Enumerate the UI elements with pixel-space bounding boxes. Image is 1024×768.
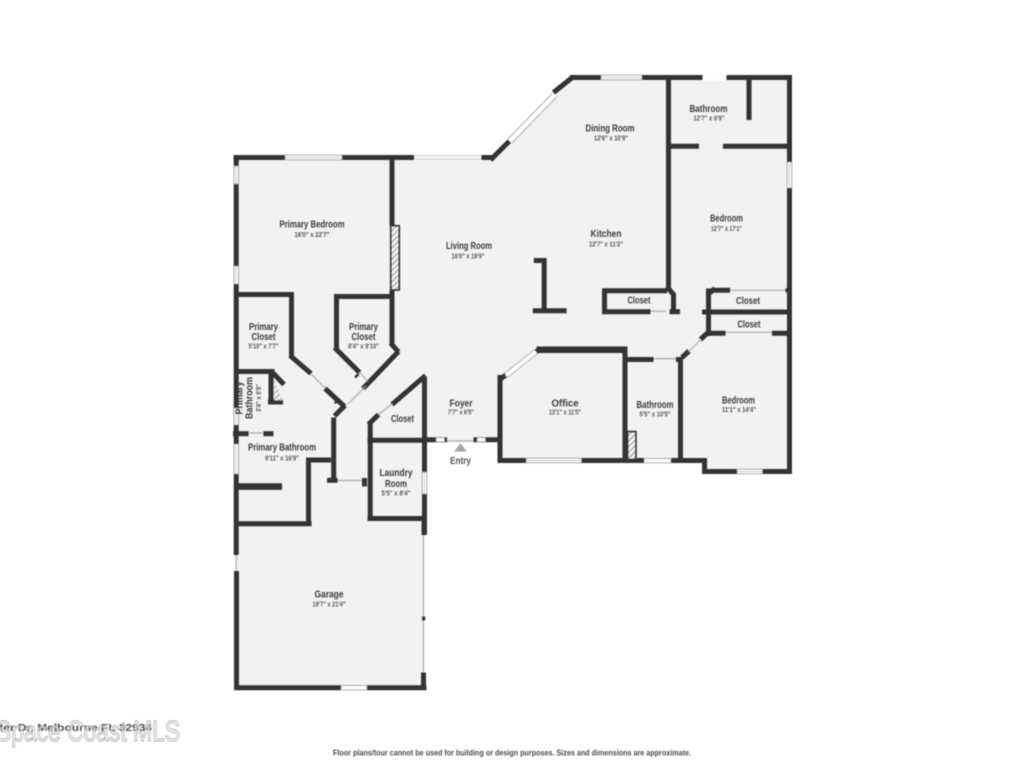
svg-text:Closet: Closet — [738, 319, 761, 331]
svg-text:12'7" x 17'1": 12'7" x 17'1" — [711, 224, 742, 233]
svg-text:12'6" x 10'9": 12'6" x 10'9" — [594, 134, 628, 143]
svg-text:Entry: Entry — [450, 455, 471, 467]
svg-text:Living Room: Living Room — [446, 240, 492, 252]
svg-text:13'1" x 11'5": 13'1" x 11'5" — [549, 408, 581, 417]
svg-text:Closet: Closet — [391, 413, 414, 425]
svg-text:Primary Bathroom: Primary Bathroom — [248, 442, 316, 454]
svg-text:8'4" x 8'10": 8'4" x 8'10" — [348, 342, 379, 351]
svg-text:5'10" x 7'7": 5'10" x 7'7" — [249, 342, 279, 351]
svg-text:16'0" x 19'9": 16'0" x 19'9" — [452, 251, 485, 260]
svg-text:12'7" x 11'2": 12'7" x 11'2" — [589, 239, 623, 248]
svg-text:19'7" x 21'4": 19'7" x 21'4" — [313, 600, 346, 609]
svg-text:3'4" x 6'8": 3'4" x 6'8" — [254, 384, 263, 412]
svg-text:Closet: Closet — [628, 295, 651, 307]
svg-text:Primary Bedroom: Primary Bedroom — [280, 219, 345, 231]
svg-text:Bedroom: Bedroom — [710, 213, 743, 225]
svg-text:5'5" x 10'5": 5'5" x 10'5" — [640, 410, 671, 419]
svg-text:5'5" x 8'4": 5'5" x 8'4" — [382, 489, 411, 498]
svg-text:Floor plans/tour cannot be use: Floor plans/tour cannot be used for buil… — [333, 748, 691, 758]
svg-text:Space Coast MLS: Space Coast MLS — [0, 716, 180, 748]
svg-text:7'7" x 6'5": 7'7" x 6'5" — [448, 408, 474, 417]
svg-text:Kitchen: Kitchen — [591, 228, 622, 240]
svg-text:9'11" x 16'9": 9'11" x 16'9" — [265, 454, 299, 463]
svg-text:16'0" x 22'7": 16'0" x 22'7" — [295, 230, 330, 239]
svg-text:11'1" x 14'4": 11'1" x 14'4" — [722, 405, 756, 414]
svg-text:12'7" x 6'9": 12'7" x 6'9" — [694, 114, 725, 123]
svg-text:Closet: Closet — [736, 295, 760, 307]
